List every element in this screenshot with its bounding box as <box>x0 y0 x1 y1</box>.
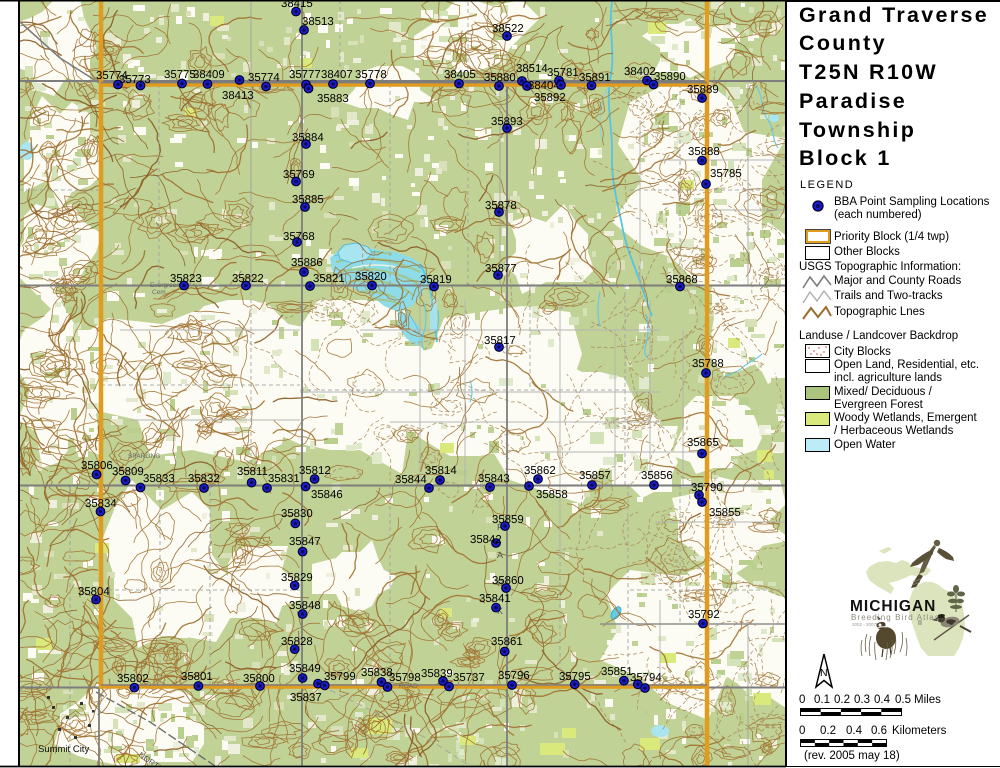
svg-text:35821: 35821 <box>313 273 345 285</box>
svg-text:35768: 35768 <box>283 231 315 243</box>
svg-text:35880: 35880 <box>484 72 516 84</box>
svg-text:35819: 35819 <box>420 274 452 286</box>
svg-text:SPARLING: SPARLING <box>128 453 160 460</box>
svg-text:A: A <box>497 550 503 560</box>
svg-text:35809: 35809 <box>112 466 144 478</box>
svg-text:35888: 35888 <box>688 146 720 158</box>
svg-text:35878: 35878 <box>485 200 517 212</box>
svg-text:35865: 35865 <box>687 437 719 449</box>
svg-text:35804: 35804 <box>78 586 110 598</box>
svg-text:N: N <box>820 667 828 679</box>
svg-text:ROAD: ROAD <box>399 683 418 690</box>
svg-text:35844: 35844 <box>395 474 427 486</box>
svg-text:35802: 35802 <box>117 673 149 685</box>
svg-text:38407: 38407 <box>321 69 353 81</box>
svg-text:35788: 35788 <box>692 358 724 370</box>
svg-text:35790: 35790 <box>691 482 723 494</box>
svg-text:38409: 38409 <box>193 69 225 81</box>
svg-text:35811: 35811 <box>237 466 268 478</box>
svg-text:35774: 35774 <box>248 72 280 84</box>
svg-text:35773: 35773 <box>119 74 151 86</box>
svg-text:35851: 35851 <box>601 666 633 678</box>
svg-text:35847: 35847 <box>289 536 321 548</box>
svg-text:35775: 35775 <box>164 69 196 81</box>
svg-text:35792: 35792 <box>688 609 720 621</box>
svg-text:35868: 35868 <box>666 274 698 286</box>
svg-text:35842: 35842 <box>470 534 502 546</box>
svg-text:35861: 35861 <box>491 636 523 648</box>
svg-text:II: II <box>918 620 922 627</box>
svg-text:35893: 35893 <box>491 116 523 128</box>
svg-text:35891: 35891 <box>579 72 611 84</box>
svg-text:38514: 38514 <box>516 63 548 75</box>
svg-text:35858: 35858 <box>536 489 568 501</box>
svg-text:35889: 35889 <box>687 84 719 96</box>
svg-text:38402: 38402 <box>624 66 656 78</box>
svg-text:35833: 35833 <box>143 473 175 485</box>
svg-text:35838: 35838 <box>361 667 393 679</box>
svg-text:38522: 38522 <box>492 23 524 35</box>
svg-text:35890: 35890 <box>654 71 686 83</box>
svg-text:35885: 35885 <box>292 194 324 206</box>
svg-text:35841: 35841 <box>479 593 511 605</box>
svg-text:Summit City: Summit City <box>38 744 89 755</box>
svg-text:35846: 35846 <box>311 489 343 501</box>
svg-text:35860: 35860 <box>492 575 524 587</box>
svg-text:35798: 35798 <box>389 672 421 684</box>
svg-text:35794: 35794 <box>630 672 662 684</box>
svg-text:35823: 35823 <box>170 273 202 285</box>
svg-text:35843: 35843 <box>478 473 510 485</box>
svg-text:35848: 35848 <box>289 600 321 612</box>
svg-text:35862: 35862 <box>524 465 556 477</box>
svg-text:35832: 35832 <box>188 473 220 485</box>
svg-text:35886: 35886 <box>291 257 323 269</box>
svg-text:35831: 35831 <box>268 473 300 485</box>
svg-text:35820: 35820 <box>355 271 387 283</box>
svg-text:35839: 35839 <box>421 668 453 680</box>
svg-text:35800: 35800 <box>243 673 275 685</box>
svg-text:35837: 35837 <box>290 692 322 704</box>
svg-text:35877: 35877 <box>485 263 517 275</box>
svg-text:35856: 35856 <box>641 470 673 482</box>
svg-text:35814: 35814 <box>425 465 457 477</box>
svg-text:35855: 35855 <box>709 507 741 519</box>
svg-text:35796: 35796 <box>498 670 530 682</box>
svg-text:35829: 35829 <box>281 572 313 584</box>
svg-text:35777: 35777 <box>289 69 321 81</box>
svg-text:38413: 38413 <box>222 90 254 102</box>
svg-text:35737: 35737 <box>453 672 485 684</box>
svg-text:38405: 38405 <box>444 69 476 81</box>
svg-text:35834: 35834 <box>85 498 117 510</box>
svg-text:35769: 35769 <box>283 169 315 181</box>
svg-text:Cem: Cem <box>152 289 166 296</box>
svg-text:35817: 35817 <box>484 335 516 347</box>
svg-text:35828: 35828 <box>281 636 313 648</box>
svg-text:35785: 35785 <box>710 168 742 180</box>
svg-text:2002 - 2007: 2002 - 2007 <box>852 622 877 627</box>
svg-text:35795: 35795 <box>559 671 591 683</box>
svg-text:35883: 35883 <box>317 93 349 105</box>
svg-text:35778: 35778 <box>355 69 387 81</box>
svg-text:35812: 35812 <box>299 465 331 477</box>
svg-text:35857: 35857 <box>579 470 611 482</box>
svg-text:35781: 35781 <box>547 67 579 79</box>
svg-text:35822: 35822 <box>232 273 264 285</box>
svg-text:35830: 35830 <box>281 508 313 520</box>
svg-text:35806: 35806 <box>81 460 113 472</box>
svg-text:Breeding Bird Atlas: Breeding Bird Atlas <box>851 613 940 622</box>
svg-text:35859: 35859 <box>492 514 524 526</box>
svg-text:35884: 35884 <box>292 132 324 144</box>
svg-text:38513: 38513 <box>302 16 334 28</box>
svg-text:35849: 35849 <box>289 663 321 675</box>
svg-text:35799: 35799 <box>324 671 356 683</box>
svg-text:35892: 35892 <box>534 92 566 104</box>
svg-text:35801: 35801 <box>181 671 213 683</box>
